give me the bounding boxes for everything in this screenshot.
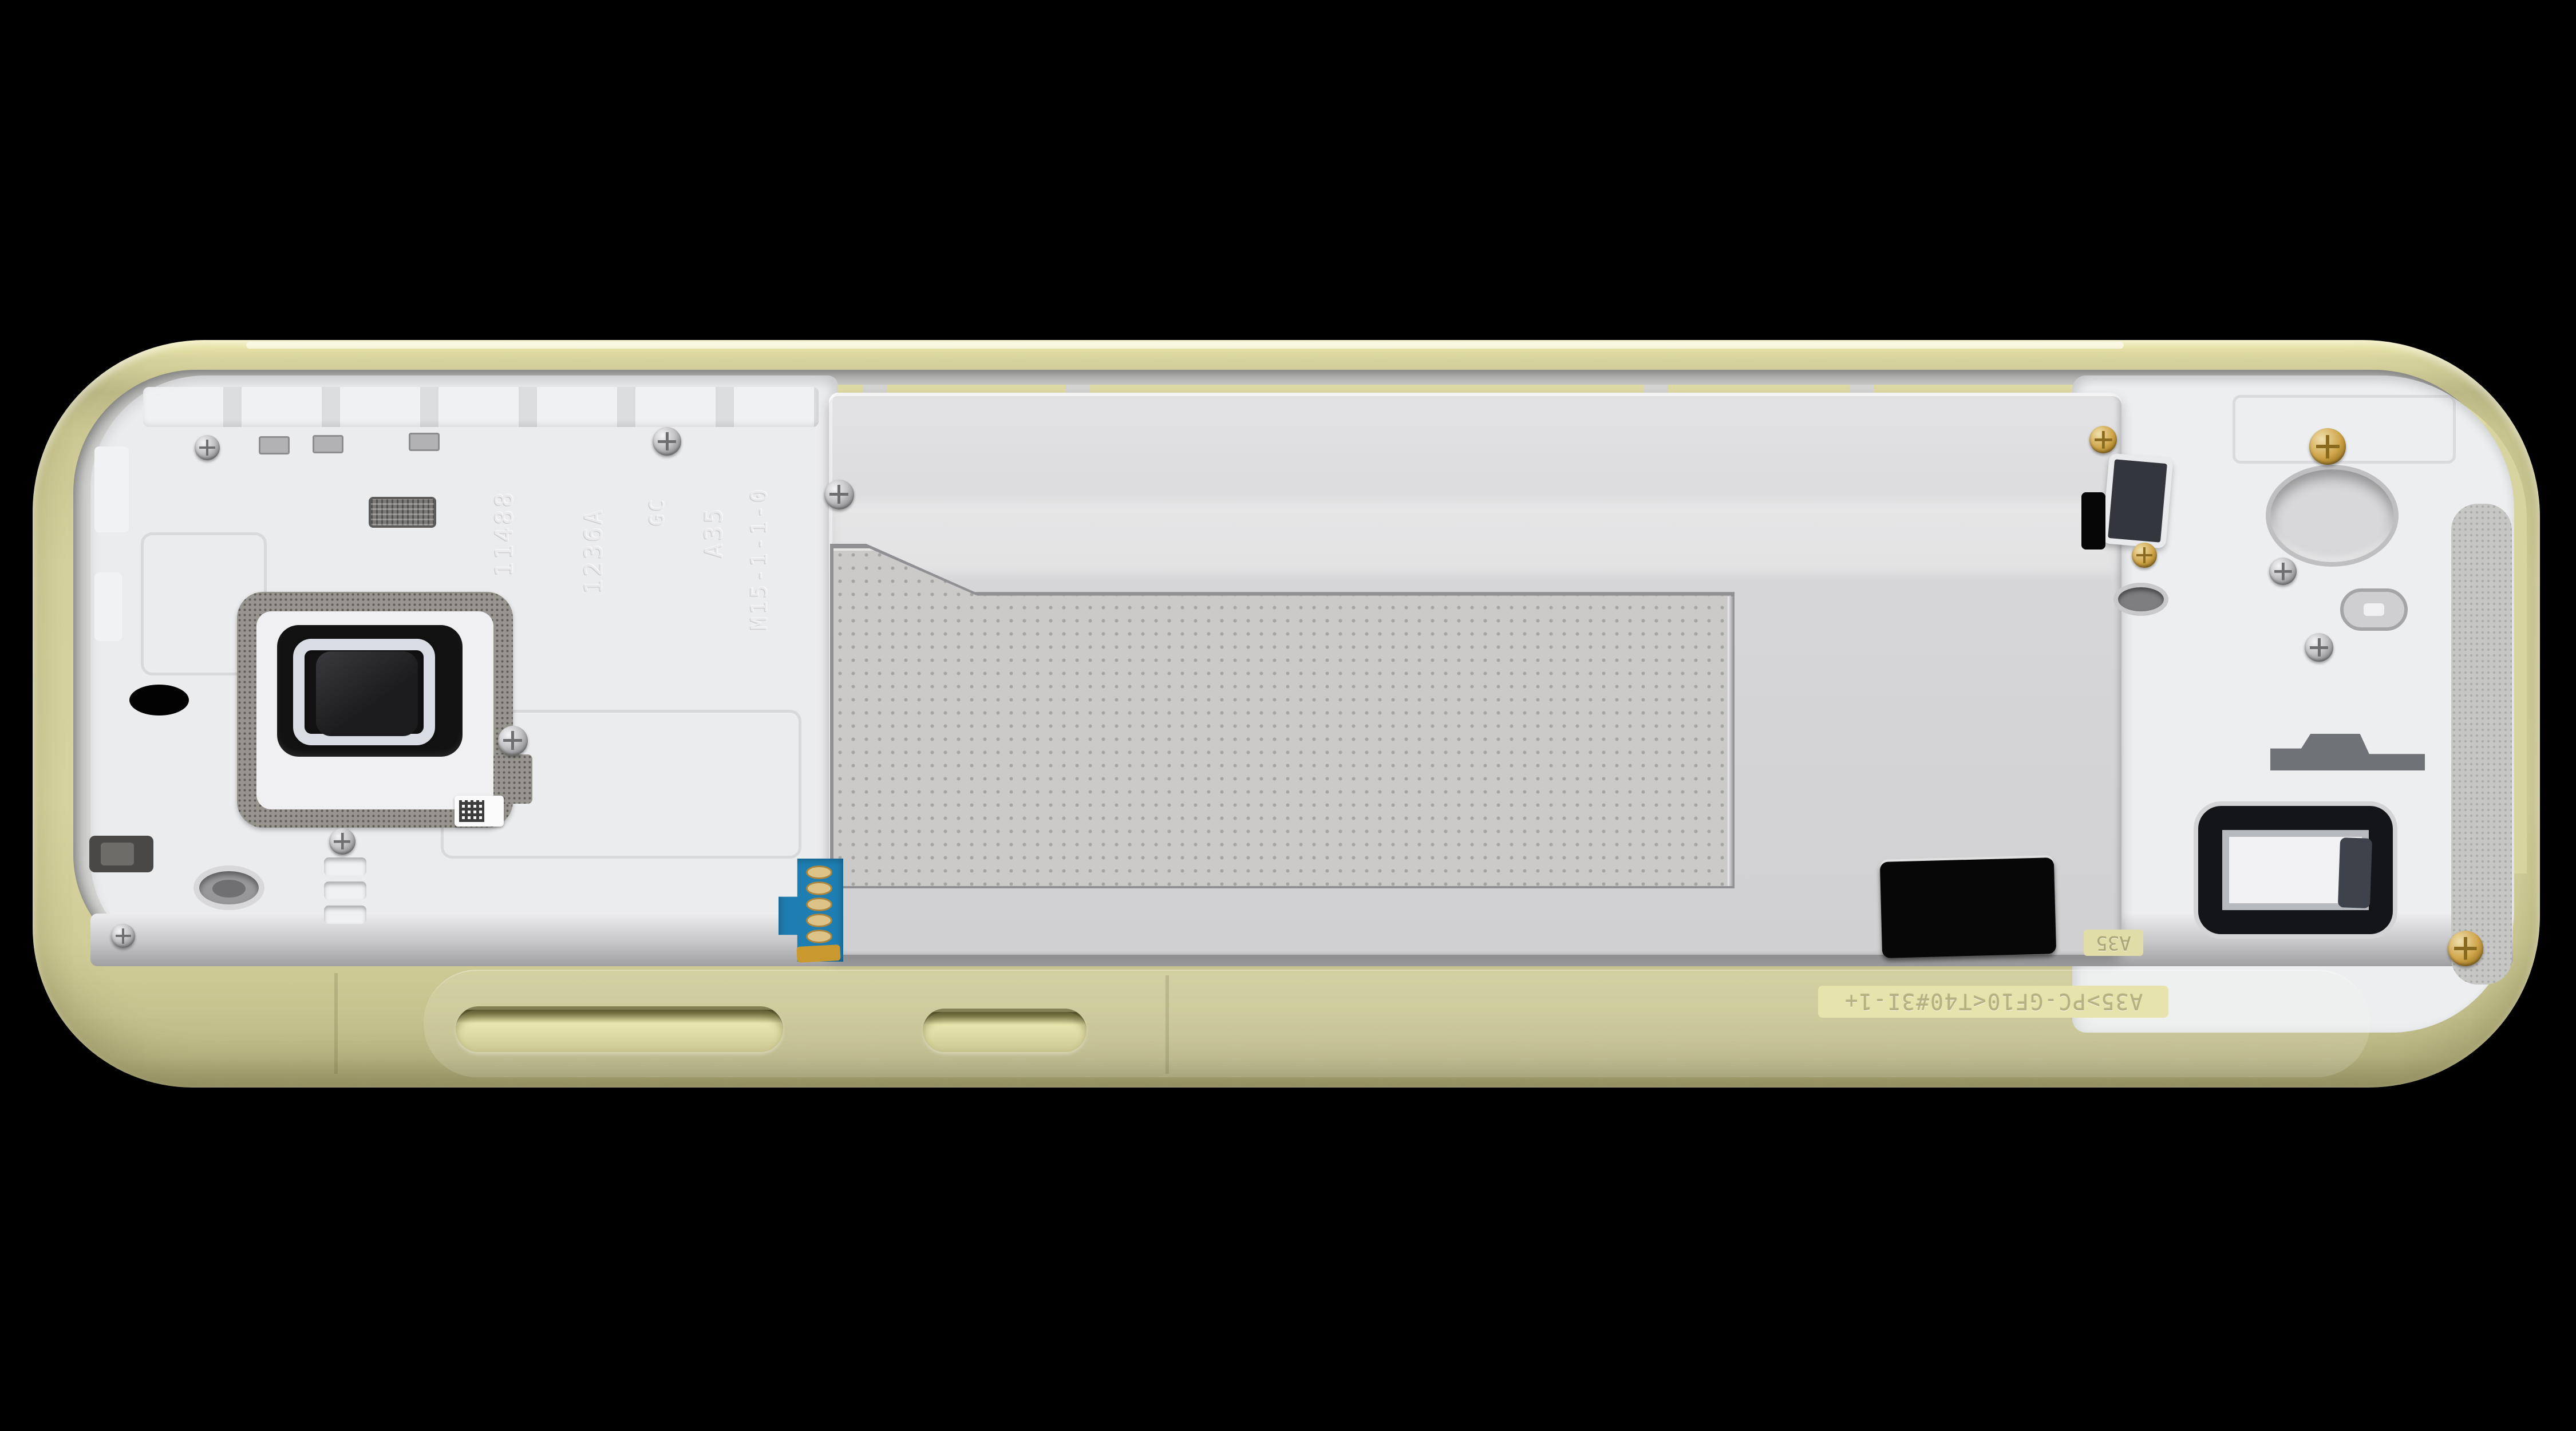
gold-screw	[2089, 426, 2117, 453]
top-crenellation	[143, 387, 819, 427]
battery-plate-ridge	[1728, 596, 1733, 886]
screw	[498, 726, 528, 756]
mic-hole	[193, 865, 264, 910]
plastic-tab	[94, 572, 122, 641]
plate-cutout-hole	[1880, 857, 2056, 958]
screw	[2269, 558, 2297, 585]
round-opening	[2266, 465, 2399, 567]
sensor-pad	[89, 836, 153, 872]
gold-screw	[2448, 931, 2483, 966]
screw	[653, 427, 681, 456]
gold-contact-pad	[806, 898, 832, 911]
gold-contact-pad	[806, 930, 832, 943]
engraved-code: 1236A	[579, 507, 607, 594]
latch-plate	[2340, 588, 2408, 631]
vent-slot	[324, 906, 366, 924]
contact-pad	[409, 433, 440, 451]
screw	[111, 924, 135, 948]
engraved-code: GC	[646, 497, 669, 526]
material-code-strip: A35>PC-GF10<T40#3I-1+	[1818, 986, 2168, 1018]
qr-sticker	[455, 796, 504, 827]
antenna-seam	[1165, 975, 1169, 1074]
gold-contact-pad	[806, 865, 832, 879]
battery-tray-plate	[833, 548, 1731, 886]
screw	[2305, 633, 2333, 662]
through-hole	[129, 685, 189, 715]
engraved-code: 11488	[490, 490, 518, 576]
gold-screw	[2132, 543, 2157, 568]
screw	[329, 828, 355, 855]
screw	[824, 480, 854, 509]
edge-cutout	[2081, 492, 2105, 550]
contact-pad	[259, 436, 290, 454]
gold-contact-pad	[806, 881, 832, 895]
flex-gold-tail	[796, 944, 840, 963]
power-button-slot	[923, 1009, 1086, 1052]
gold-contact-pad	[806, 914, 832, 927]
screw	[195, 435, 220, 460]
loudspeaker-slot	[2338, 837, 2372, 908]
port-hole	[2113, 583, 2168, 616]
speaker-mesh	[369, 497, 436, 528]
engraved-code: M15-1-1-0	[746, 487, 772, 630]
vent-slot	[324, 857, 366, 876]
engraved-code: A35	[700, 506, 728, 558]
plastic-tab	[94, 446, 129, 532]
flash-window	[2101, 453, 2173, 548]
photo-canvas: 11488 1236A GC A35 M15-1-1-0 A35 A35>PC-…	[0, 0, 2576, 1431]
antenna-seam	[334, 973, 338, 1074]
camera-lens-window	[316, 651, 418, 736]
side-label: A35	[2084, 930, 2143, 956]
volume-button-slot	[456, 1006, 783, 1052]
gold-screw	[2309, 428, 2346, 465]
vent-slot	[324, 881, 366, 900]
frame-top-highlight	[246, 342, 2124, 349]
contact-pad	[313, 435, 343, 453]
right-metal-rail	[2451, 504, 2512, 985]
plate-highlight	[835, 499, 2117, 574]
